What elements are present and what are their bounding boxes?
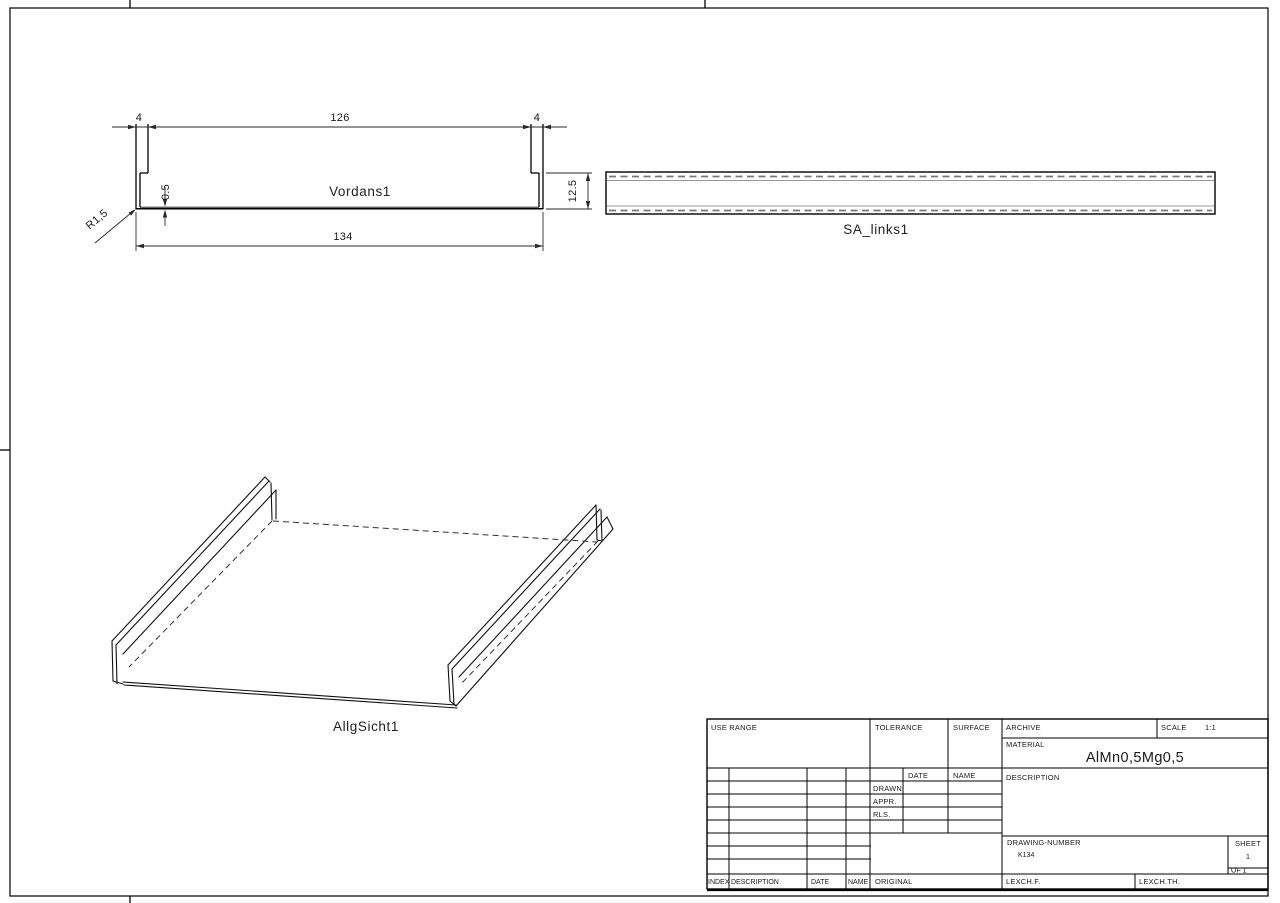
arrowhead [535,244,543,248]
dim-inner-width: 126 [330,112,349,124]
sheet-label: SHEET [1235,839,1261,848]
side-view-label: SA_links1 [843,222,908,237]
dim-thickness: 0.5 [160,184,172,200]
footer-description-label: DESCRIPTION [731,879,779,886]
arrowhead [163,210,167,218]
material-value: AlMn0,5Mg0,5 [1086,750,1184,766]
frame-border [10,8,1268,896]
hidden-line [461,541,598,684]
arrowhead [586,173,590,181]
side-view-geometry [606,172,1215,214]
footer-checker-left: LEXCH.F. [1006,877,1041,886]
signoff-row-drawn: DRAWN [873,784,902,793]
arrowhead [128,125,136,129]
signoff-row-appr: APPR. [873,797,897,806]
drawing-number-label: DRAWING-NUMBER [1007,838,1081,847]
arrowhead [586,201,590,209]
surface-label: SURFACE [953,723,990,732]
sheet-of-label: OF 1 [1231,868,1247,875]
sheet-value: 1 [1246,852,1250,861]
signoff-date-header: DATE [908,771,928,780]
drawing-sheet: 4 126 4 0.5 12.5 134 R1,5 Vordans1 [0,0,1280,903]
arrowhead [148,125,156,129]
footer-checker-right: LEXCH.TH. [1139,877,1180,886]
dim-flange-left: 4 [136,112,142,124]
tolerance-label: TOLERANCE [875,723,923,732]
description-label: DESCRIPTION [1006,773,1059,782]
dim-overall-width: 134 [333,231,352,243]
footer-original-label: ORIGINAL [875,877,912,886]
use-range-label: USE RANGE [711,723,757,732]
arrowhead [543,125,551,129]
material-label: MATERIAL [1006,740,1045,749]
side-view-outline [606,172,1215,214]
drawing-number-value: K134 [1018,852,1034,859]
archive-label: ARCHIVE [1006,723,1041,732]
cad-drawing: 4 126 4 0.5 12.5 134 R1,5 Vordans1 [0,0,1280,903]
footer-name-label: NAME [848,879,869,886]
footer-date-label: DATE [811,879,829,886]
front-view-label: Vordans1 [329,184,391,199]
dim-radius: R1,5 [84,207,110,232]
iso-view-geometry [112,477,613,708]
hidden-line [273,521,597,542]
dim-height: 12.5 [567,180,579,203]
iso-view-label: AllgSicht1 [333,719,399,734]
title-block: USE RANGE TOLERANCE SURFACE ARCHIVE SCAL… [707,719,1268,890]
footer-index-label: INDEX [708,879,730,886]
title-block-border [707,719,1268,889]
scale-value: 1:1 [1205,723,1216,732]
signoff-name-header: NAME [953,771,975,780]
signoff-row-rls: RLS. [873,810,890,819]
scale-label: SCALE [1161,723,1187,732]
dim-flange-right: 4 [534,112,540,124]
front-view-dimensions: 4 126 4 0.5 12.5 134 R1,5 [84,112,592,251]
arrowhead [523,125,531,129]
arrowhead [136,244,144,248]
hidden-line [129,521,272,667]
